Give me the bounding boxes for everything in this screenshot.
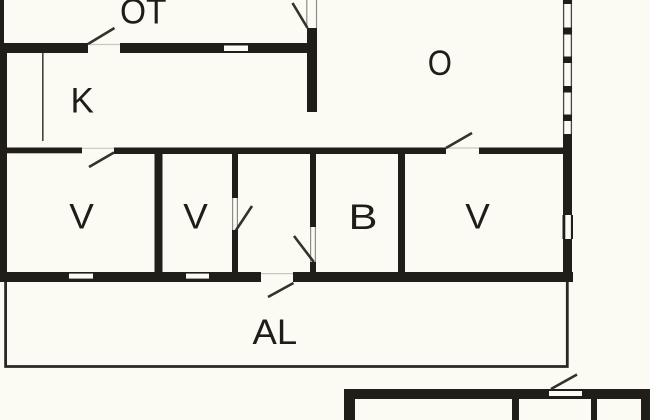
svg-text:V: V — [465, 197, 490, 236]
svg-text:K: K — [71, 82, 94, 121]
svg-text:AL: AL — [253, 313, 298, 352]
svg-text:V: V — [69, 197, 94, 236]
svg-text:O: O — [428, 44, 452, 83]
svg-text:V: V — [183, 197, 208, 236]
svg-text:OT: OT — [120, 0, 167, 32]
svg-text:B: B — [349, 198, 378, 237]
